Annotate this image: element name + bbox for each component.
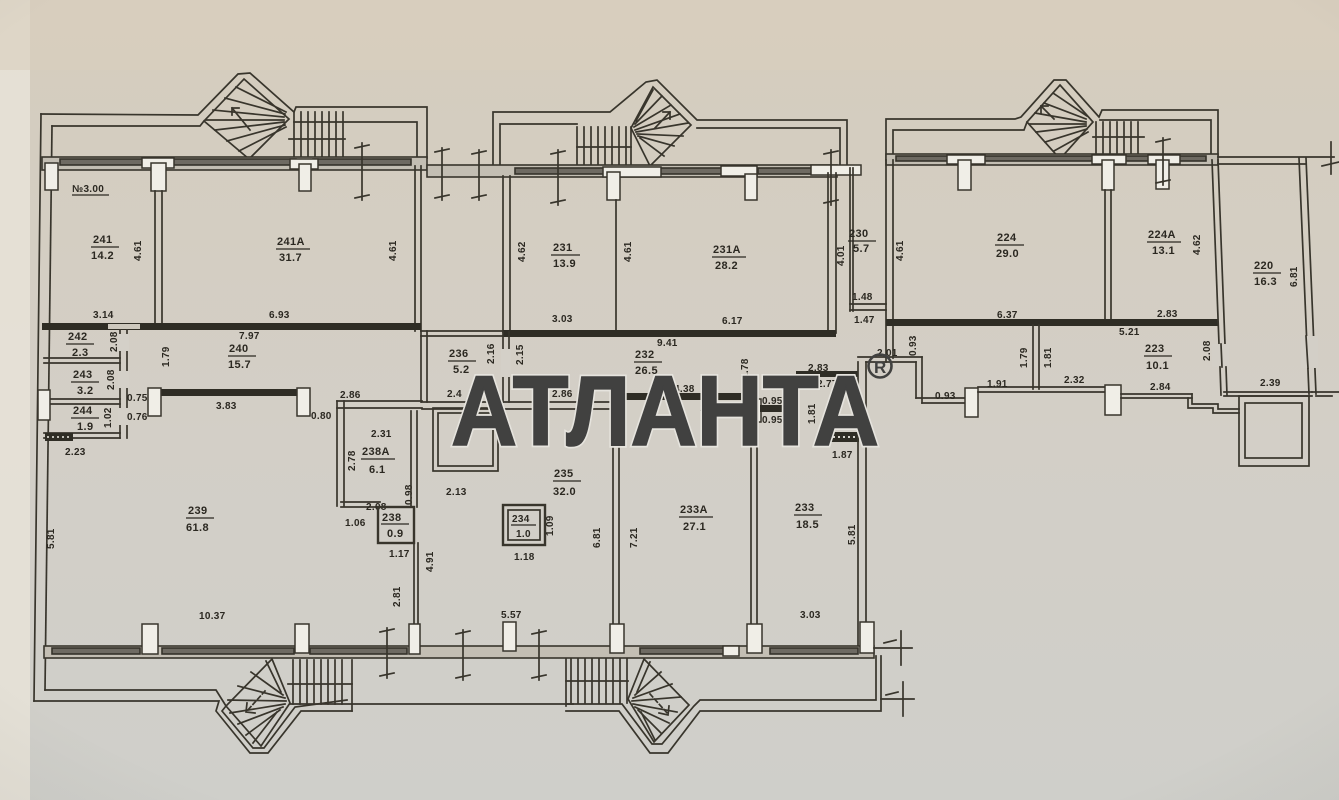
svg-text:АТЛАНТА: АТЛАНТА: [451, 355, 879, 466]
svg-text:R: R: [874, 358, 886, 377]
